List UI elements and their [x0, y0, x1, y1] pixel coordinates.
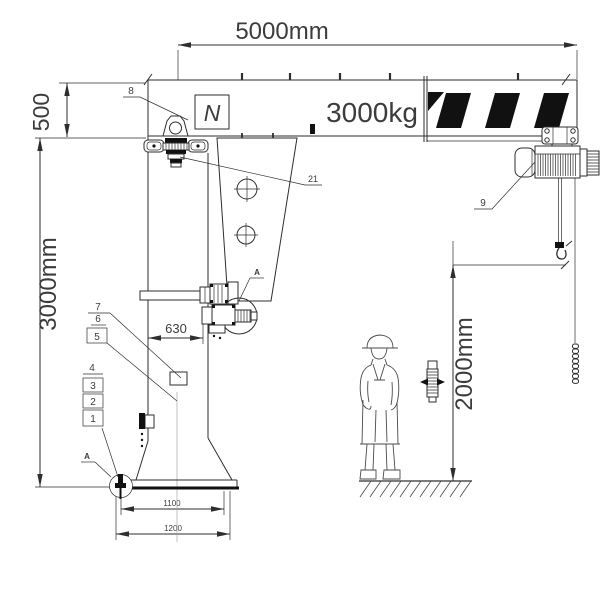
part-label-6-text: 6 [95, 314, 101, 325]
dim-column-height: 3000mm [35, 138, 146, 487]
part-label-1-text: 1 [90, 414, 96, 425]
motor-symbol: N [204, 100, 221, 126]
arrow-right-icon [437, 379, 445, 386]
part-label-8-text: 8 [128, 86, 134, 97]
arrow-left-icon [420, 379, 428, 386]
part-label-4-text: 4 [89, 363, 95, 374]
dim-column-width: 630 [148, 321, 203, 344]
electric-hoist [515, 146, 599, 178]
hook-icon [557, 248, 566, 259]
dim-column-width-label: 630 [165, 321, 187, 336]
part-label-5-text: 5 [94, 332, 100, 343]
slew-motor [212, 305, 235, 325]
part-label-6: 6 [91, 314, 106, 325]
pendant-cable [573, 178, 579, 383]
junction-box [170, 372, 187, 385]
dim-hook-height: 2000mm [451, 241, 572, 481]
part-label-3: 3 [83, 378, 103, 392]
hoist-cable-hook [555, 178, 566, 259]
dim-column-height-label: 3000mm [35, 237, 62, 330]
slew-bearing-stack [163, 137, 189, 167]
part-label-2-text: 2 [90, 397, 96, 408]
hoist-trolley [542, 127, 578, 147]
lug-hole [170, 122, 182, 134]
worker-boots [360, 470, 400, 479]
drive-mount-bar [140, 291, 204, 300]
part-label-21-text: 21 [308, 174, 318, 184]
beam-bottom-mark [310, 124, 315, 134]
part-label-4: 4 [83, 363, 103, 374]
part-label-2: 2 [83, 394, 103, 408]
drawing-canvas: 5000mm 500 3000mm 630 2000mm 1100 1200 [0, 0, 600, 600]
detail-label-a-anchor-text: A [84, 452, 90, 461]
hook-block [555, 242, 564, 248]
part-label-9-text: 9 [480, 198, 486, 209]
detail-label-a-anchor: A [81, 452, 111, 477]
anchor-bolt-detail [110, 474, 133, 499]
capacity-label: 3000kg [326, 97, 418, 128]
dim-base-plate-width-label: 1200 [164, 524, 182, 533]
dim-beam-height-label: 500 [28, 93, 54, 131]
detail-label-a-slew-text: A [254, 268, 260, 277]
worker-figure [360, 335, 400, 479]
dim-base-bolt-spacing-label: 1100 [163, 499, 181, 508]
part-label-7-text: 7 [95, 302, 101, 313]
hard-hat [367, 335, 393, 348]
dim-base-bolt-spacing: 1100 [121, 491, 224, 515]
pendant-control [420, 361, 445, 402]
dim-hook-height-label: 2000mm [451, 317, 478, 410]
part-label-3-text: 3 [90, 381, 96, 392]
dim-jib-span-label: 5000mm [235, 18, 328, 45]
ground-hatching [359, 481, 472, 497]
worker-face [371, 348, 387, 359]
hazard-stripe-panel [428, 92, 569, 128]
beam-bolt-ticks [242, 73, 518, 80]
motor-symbol-box: N [195, 95, 229, 129]
jib-crane-technical-drawing: 5000mm 500 3000mm 630 2000mm 1100 1200 [0, 0, 600, 600]
limit-switch [139, 413, 154, 447]
